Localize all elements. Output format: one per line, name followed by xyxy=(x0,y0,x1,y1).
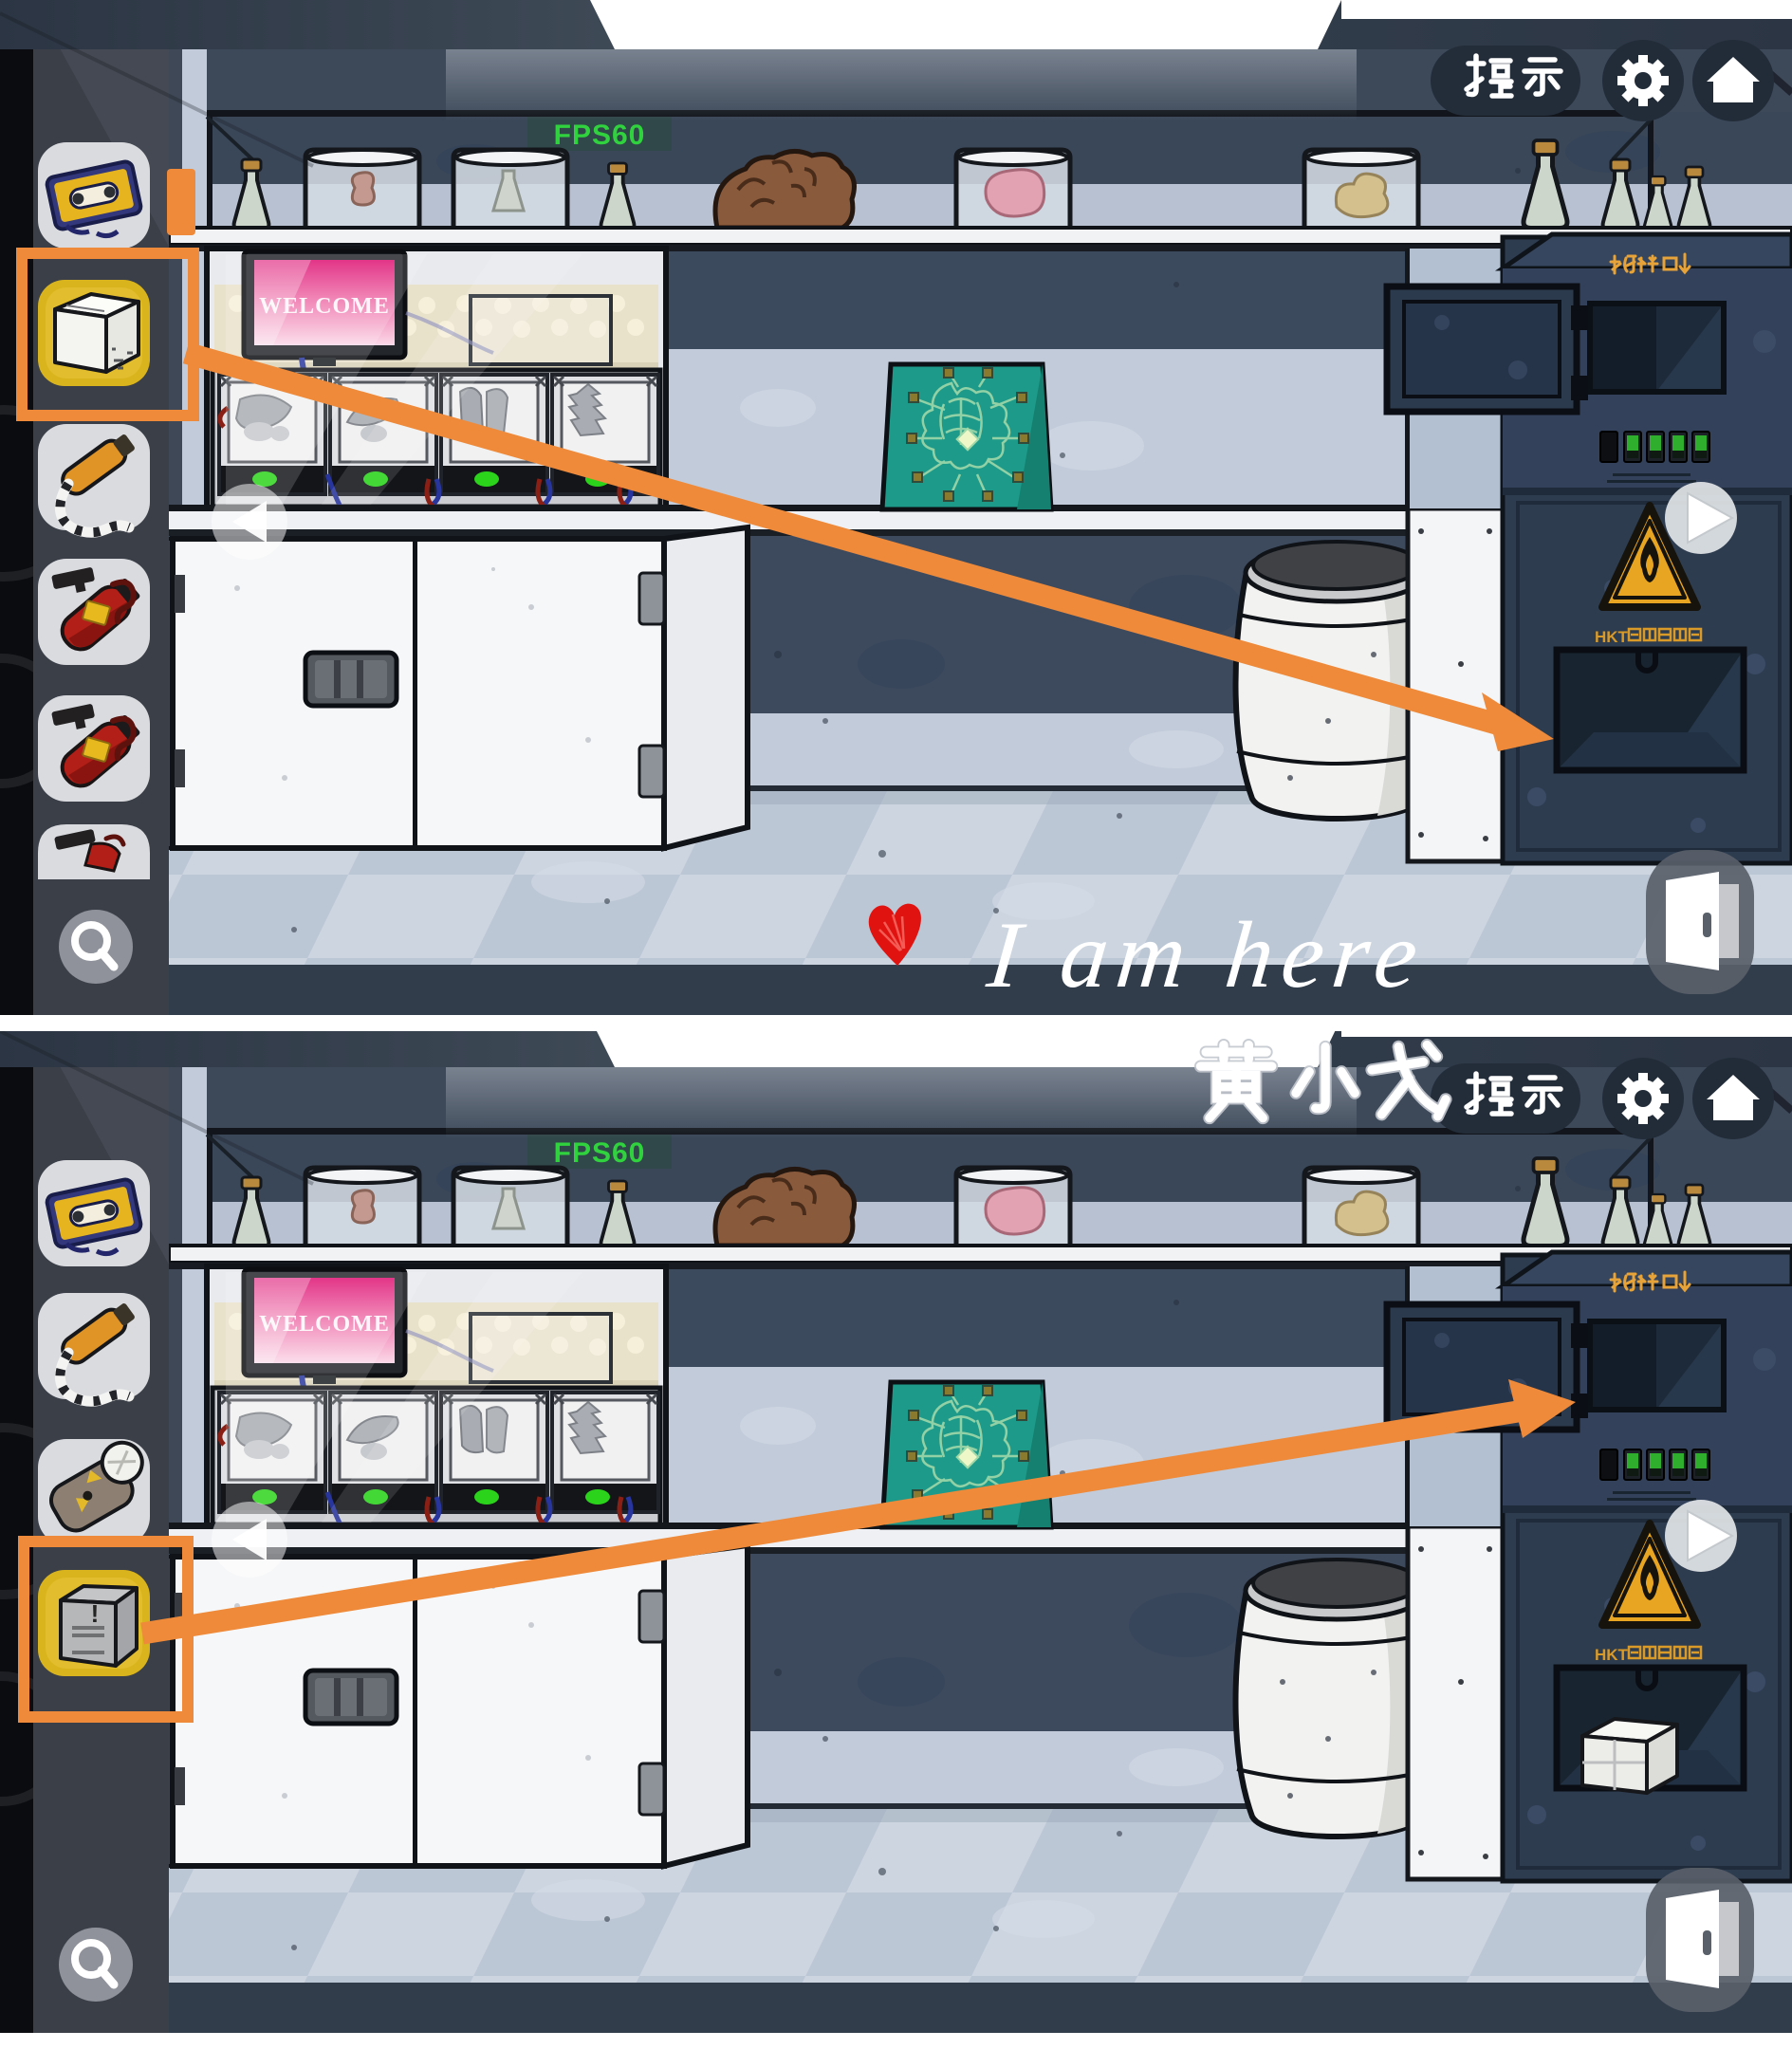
svg-text:!: ! xyxy=(91,1599,100,1628)
svg-text:I am here: I am here xyxy=(982,902,1431,1007)
